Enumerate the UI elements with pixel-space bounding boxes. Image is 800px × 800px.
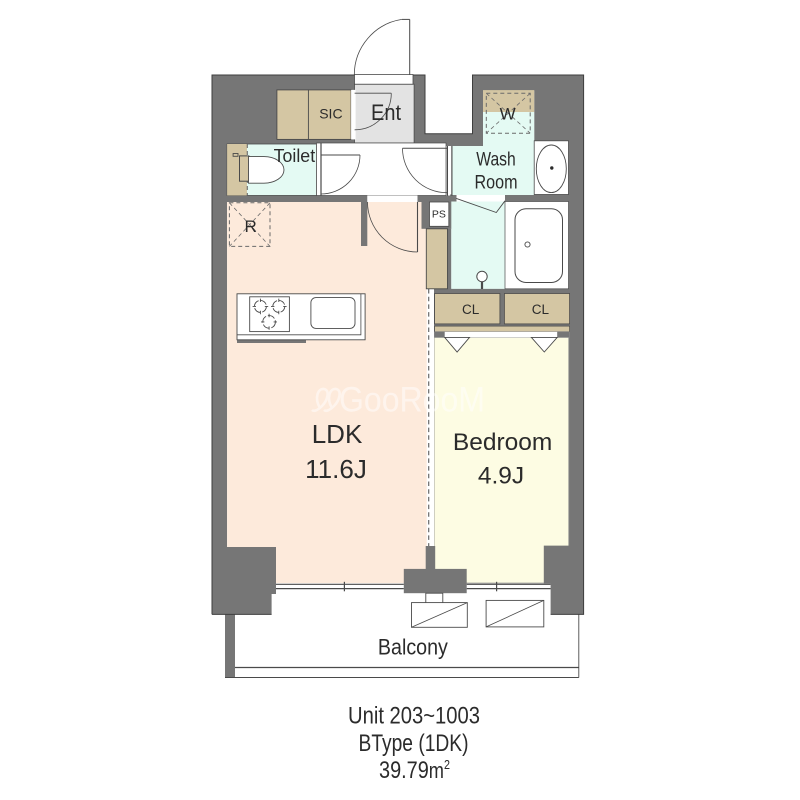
svg-text:Balcony: Balcony xyxy=(378,635,448,660)
svg-text:BType (1DK): BType (1DK) xyxy=(359,730,469,757)
svg-text:Toilet: Toilet xyxy=(274,146,316,166)
svg-text:Ent: Ent xyxy=(371,100,401,125)
svg-text:4.9J: 4.9J xyxy=(478,462,524,489)
svg-text:W: W xyxy=(500,105,516,124)
svg-text:PS: PS xyxy=(432,209,446,221)
svg-text:Bedroom: Bedroom xyxy=(453,429,552,456)
svg-text:CL: CL xyxy=(462,302,480,317)
svg-text:39.79m2: 39.79m2 xyxy=(379,757,450,784)
svg-text:GooRooM: GooRooM xyxy=(339,381,485,420)
svg-text:Unit 203~1003: Unit 203~1003 xyxy=(348,703,480,730)
svg-text:Wash: Wash xyxy=(476,150,516,171)
svg-text:SIC: SIC xyxy=(319,106,342,122)
svg-text:CL: CL xyxy=(532,302,550,317)
svg-text:R: R xyxy=(245,217,257,236)
svg-text:Room: Room xyxy=(475,173,518,194)
svg-text:11.6J: 11.6J xyxy=(305,454,367,484)
svg-text:LDK: LDK xyxy=(312,419,363,449)
